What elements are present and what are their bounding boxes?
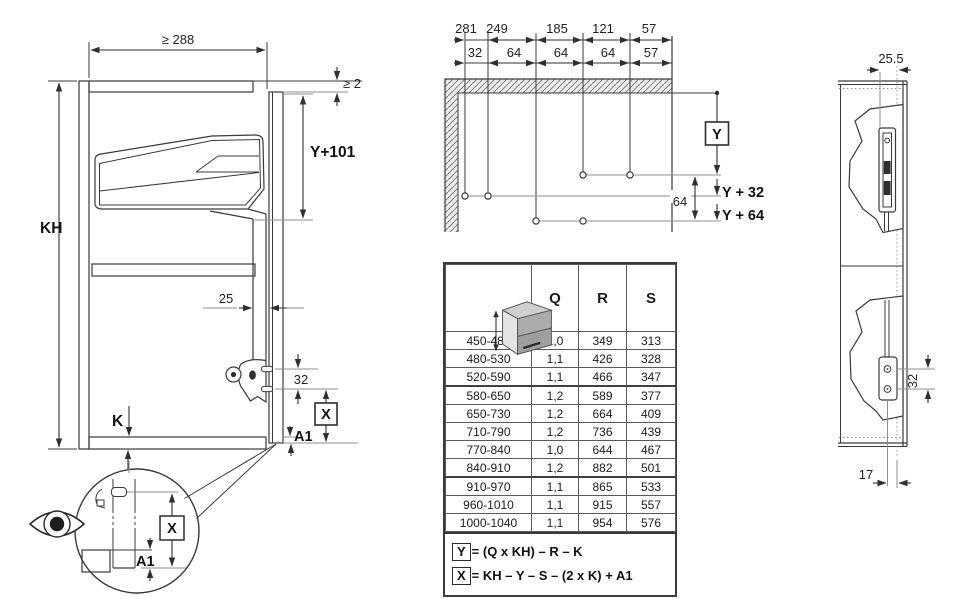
s-value: 501 bbox=[627, 459, 676, 478]
screw-icon bbox=[262, 366, 273, 371]
lift-fitting-installation-drawing: KH ≥ 288 ≥ 2 Y+101 25 bbox=[0, 0, 960, 616]
r-value: 426 bbox=[579, 350, 627, 368]
lift-arm bbox=[210, 209, 266, 362]
dim-cabinet-height: KH bbox=[40, 81, 77, 449]
dim-y-label: Y bbox=[712, 127, 722, 143]
q-value: 1,1 bbox=[532, 368, 579, 387]
formula-y-expr: = (Q x KH) – R – K bbox=[472, 544, 583, 559]
q-value: 1,1 bbox=[532, 496, 579, 514]
table-row: 770-8401,0644467 bbox=[446, 441, 676, 459]
r-value: 466 bbox=[579, 368, 627, 387]
s-value: 328 bbox=[627, 350, 676, 368]
dim-a1-label: A1 bbox=[294, 429, 313, 445]
formula-y: Y= (Q x KH) – R – K bbox=[452, 540, 668, 564]
kh-range: 840-910 bbox=[446, 459, 532, 478]
cabinet-section-view: KH ≥ 288 ≥ 2 Y+101 25 bbox=[0, 0, 420, 616]
s-value: 409 bbox=[627, 405, 676, 423]
kh-range: 770-840 bbox=[446, 441, 532, 459]
dim-k-label: K bbox=[112, 413, 124, 430]
dim-185: 185 bbox=[546, 21, 568, 36]
q-value: 1,0 bbox=[532, 441, 579, 459]
s-value: 347 bbox=[627, 368, 676, 387]
table-row: 960-10101,1915557 bbox=[446, 496, 676, 514]
drill-hole bbox=[462, 193, 468, 199]
dim-row-spacing: 32 64 64 64 57 bbox=[454, 45, 672, 63]
r-value: 915 bbox=[579, 496, 627, 514]
lift-mechanism bbox=[95, 135, 273, 402]
screw-icon bbox=[262, 386, 273, 391]
dim-64-gap: 64 bbox=[673, 194, 687, 209]
formula-x-box: X bbox=[452, 567, 471, 585]
q-value: 1,2 bbox=[532, 423, 579, 441]
dim-width-label: ≥ 288 bbox=[162, 32, 194, 47]
s-value: 533 bbox=[627, 477, 676, 496]
cabinet-height-header bbox=[446, 265, 532, 332]
dim-y-chain: Y 64 Y + 32 Y + 64 bbox=[670, 91, 764, 224]
dim-row-to-front: 281 249 185 121 57 bbox=[454, 21, 672, 40]
kh-range: 910-970 bbox=[446, 477, 532, 496]
dim-32-side-label: 32 bbox=[905, 374, 920, 388]
drill-hole bbox=[533, 218, 539, 224]
dim-17-label: 17 bbox=[859, 467, 873, 482]
s-value: 313 bbox=[627, 332, 676, 350]
drill-hole bbox=[627, 172, 633, 178]
mounting-plate bbox=[879, 357, 897, 400]
table-row: 650-7301,2664409 bbox=[446, 405, 676, 423]
spec-table: Q R S 450-4801,0349313 480-5301,1426328 … bbox=[443, 262, 677, 597]
kh-range: 960-1010 bbox=[446, 496, 532, 514]
dim-x-label: X bbox=[321, 407, 331, 423]
dim-249: 249 bbox=[486, 21, 508, 36]
drill-hole bbox=[485, 193, 491, 199]
door-bracket bbox=[226, 360, 273, 402]
q-value: 1,1 bbox=[532, 477, 579, 496]
dim-y32-label: Y + 32 bbox=[722, 185, 764, 201]
kh-range: 580-650 bbox=[446, 386, 532, 405]
drilling-pattern-view: 281 249 185 121 57 32 64 64 64 57 bbox=[430, 0, 780, 250]
formula-x-expr: = KH – Y – S – (2 x K) + A1 bbox=[472, 568, 633, 583]
kh-range: 650-730 bbox=[446, 405, 532, 423]
drill-hole bbox=[580, 218, 586, 224]
dim-281: 281 bbox=[455, 21, 477, 36]
carcass-corner bbox=[445, 36, 672, 232]
table-row: 910-9701,1865533 bbox=[446, 477, 676, 496]
drill-hole bbox=[580, 172, 586, 178]
r-value: 644 bbox=[579, 441, 627, 459]
formula-block: Y= (Q x KH) – R – K X= KH – Y – S – (2 x… bbox=[445, 532, 675, 595]
r-value: 349 bbox=[579, 332, 627, 350]
detail-x-label: X bbox=[167, 521, 177, 537]
detail-a1-label: A1 bbox=[136, 554, 155, 570]
formula-y-box: Y bbox=[452, 543, 471, 561]
s-value: 576 bbox=[627, 514, 676, 532]
dim-top-gap-label: ≥ 2 bbox=[343, 76, 361, 91]
q-value: 1,1 bbox=[532, 514, 579, 532]
table-row: 520-5901,1466347 bbox=[446, 368, 676, 387]
dim-57b: 57 bbox=[644, 45, 658, 60]
dim-kh-label: KH bbox=[40, 220, 62, 237]
upper-cutaway bbox=[849, 105, 903, 233]
q-value: 1,2 bbox=[532, 386, 579, 405]
dowel-icon bbox=[112, 488, 127, 497]
col-header-s: S bbox=[627, 265, 676, 332]
kh-range: 710-790 bbox=[446, 423, 532, 441]
table-row: 710-7901,2736439 bbox=[446, 423, 676, 441]
q-value: 1,2 bbox=[532, 459, 579, 478]
dim-a1: A1 bbox=[283, 426, 313, 456]
dim-25-5-label: 25.5 bbox=[878, 51, 903, 66]
r-value: 736 bbox=[579, 423, 627, 441]
r-value: 664 bbox=[579, 405, 627, 423]
kh-range: 1000-1040 bbox=[446, 514, 532, 532]
dim-57: 57 bbox=[642, 21, 656, 36]
lower-cutaway bbox=[850, 296, 903, 420]
s-value: 439 bbox=[627, 423, 676, 441]
dim-32-label: 32 bbox=[294, 372, 308, 387]
s-value: 557 bbox=[627, 496, 676, 514]
dim-screw-spacing: 32 bbox=[275, 354, 338, 404]
s-value: 377 bbox=[627, 386, 676, 405]
dim-25-label: 25 bbox=[219, 291, 233, 306]
cabinet-height-icon bbox=[489, 298, 565, 360]
col-header-r: R bbox=[579, 265, 627, 332]
table-row: 840-9101,2882501 bbox=[446, 459, 676, 478]
s-value: 467 bbox=[627, 441, 676, 459]
kh-q-r-s-table: Q R S 450-4801,0349313 480-5301,1426328 … bbox=[445, 264, 676, 532]
dim-y101-label: Y+101 bbox=[310, 144, 356, 161]
r-value: 589 bbox=[579, 386, 627, 405]
dim-y64-label: Y + 64 bbox=[722, 208, 764, 224]
shelf bbox=[92, 264, 255, 276]
r-value: 882 bbox=[579, 459, 627, 478]
dim-32: 32 bbox=[468, 45, 482, 60]
formula-x: X= KH – Y – S – (2 x K) + A1 bbox=[452, 564, 668, 588]
q-value: 1,2 bbox=[532, 405, 579, 423]
dim-121: 121 bbox=[592, 21, 614, 36]
dim-64c: 64 bbox=[601, 45, 615, 60]
kh-range: 520-590 bbox=[446, 368, 532, 387]
dim-64b: 64 bbox=[554, 45, 568, 60]
dim-k: K bbox=[112, 406, 129, 470]
dim-top-gap: ≥ 2 bbox=[337, 67, 361, 106]
dim-64a: 64 bbox=[507, 45, 521, 60]
r-value: 954 bbox=[579, 514, 627, 532]
r-value: 865 bbox=[579, 477, 627, 496]
table-row: 580-6501,2589377 bbox=[446, 386, 676, 405]
table-row: 1000-10401,1954576 bbox=[446, 514, 676, 532]
door-side-view: 25.5 32 bbox=[810, 0, 960, 616]
detail-callout: X A1 bbox=[30, 444, 276, 593]
